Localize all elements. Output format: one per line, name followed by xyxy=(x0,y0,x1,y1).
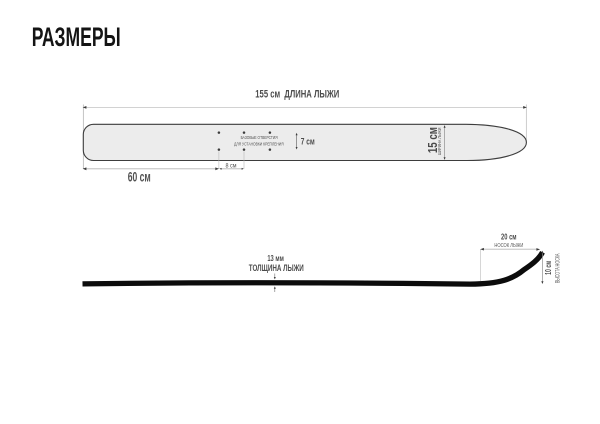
svg-text:ДЛЯ УСТАНОВКИ КРЕПЛЕНИЯ: ДЛЯ УСТАНОВКИ КРЕПЛЕНИЯ xyxy=(234,142,284,147)
svg-text:НОСОК ЛЫЖИ: НОСОК ЛЫЖИ xyxy=(494,243,523,249)
svg-text:РАЗМЕРЫ: РАЗМЕРЫ xyxy=(32,22,121,52)
svg-text:13 мм: 13 мм xyxy=(267,254,284,263)
svg-text:60 см: 60 см xyxy=(128,170,151,185)
svg-text:8 см: 8 см xyxy=(226,162,237,169)
svg-text:БАЗОВЫЕ ОТВЕРСТИЯ: БАЗОВЫЕ ОТВЕРСТИЯ xyxy=(241,135,278,140)
svg-text:7 см: 7 см xyxy=(301,136,315,146)
svg-text:ШИРИНА ЛЫЖИ: ШИРИНА ЛЫЖИ xyxy=(437,127,443,155)
svg-text:20 см: 20 см xyxy=(501,233,517,242)
svg-text:ВЫСОТА НОСКА: ВЫСОТА НОСКА xyxy=(555,254,561,284)
svg-text:ТОЛЩИНА ЛЫЖИ: ТОЛЩИНА ЛЫЖИ xyxy=(249,263,304,273)
svg-text:10 см: 10 см xyxy=(544,261,553,275)
svg-text:155 см ДЛИНА ЛЫЖИ: 155 см ДЛИНА ЛЫЖИ xyxy=(255,88,339,100)
